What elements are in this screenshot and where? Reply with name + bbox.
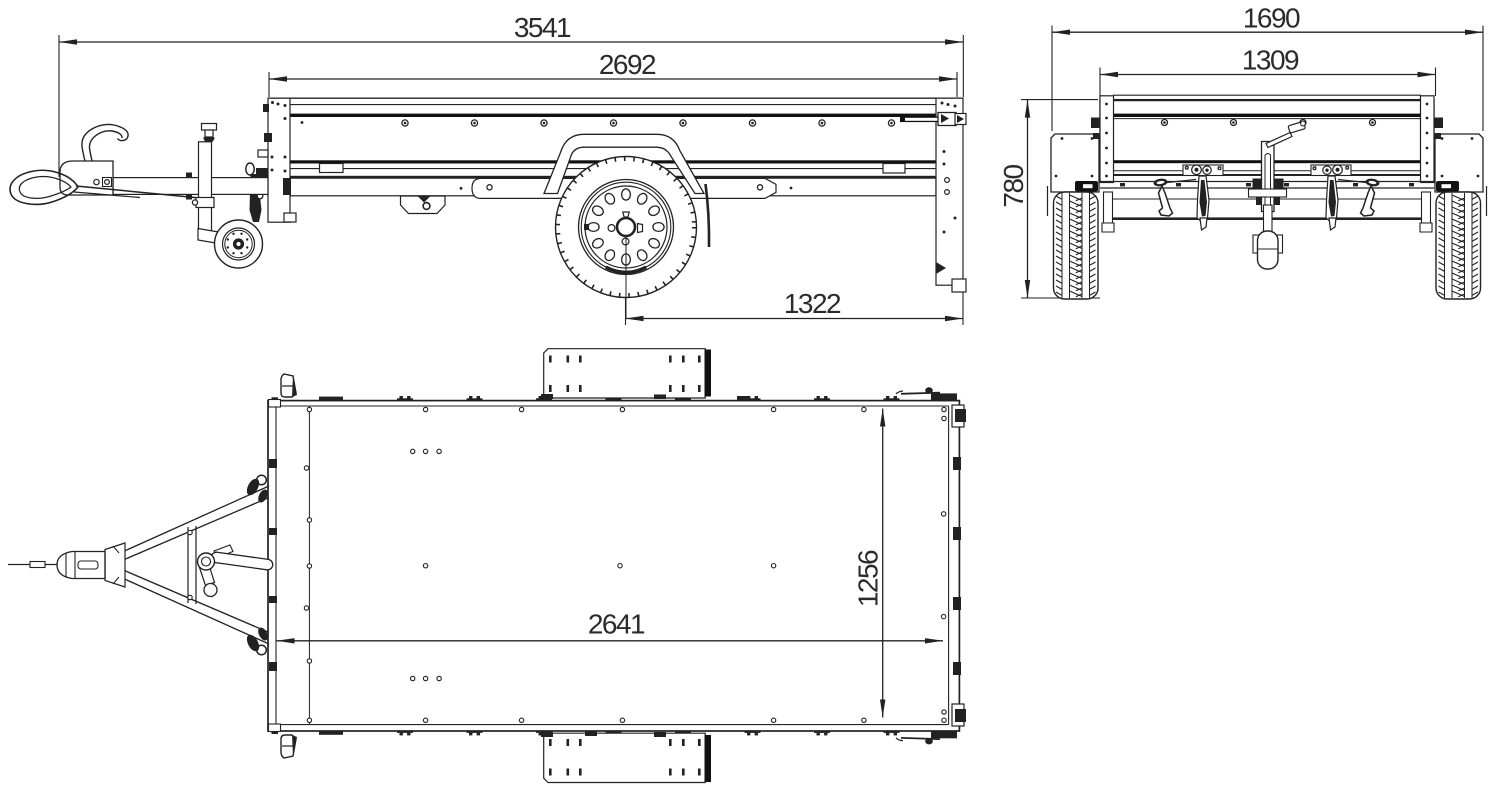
svg-text:1256: 1256	[853, 550, 884, 607]
svg-text:1322: 1322	[784, 288, 841, 319]
svg-text:1309: 1309	[1242, 45, 1299, 76]
svg-text:3541: 3541	[514, 12, 571, 43]
svg-text:2692: 2692	[599, 49, 656, 80]
svg-text:780: 780	[998, 164, 1029, 207]
svg-text:2641: 2641	[588, 609, 645, 640]
svg-text:1690: 1690	[1243, 2, 1300, 33]
